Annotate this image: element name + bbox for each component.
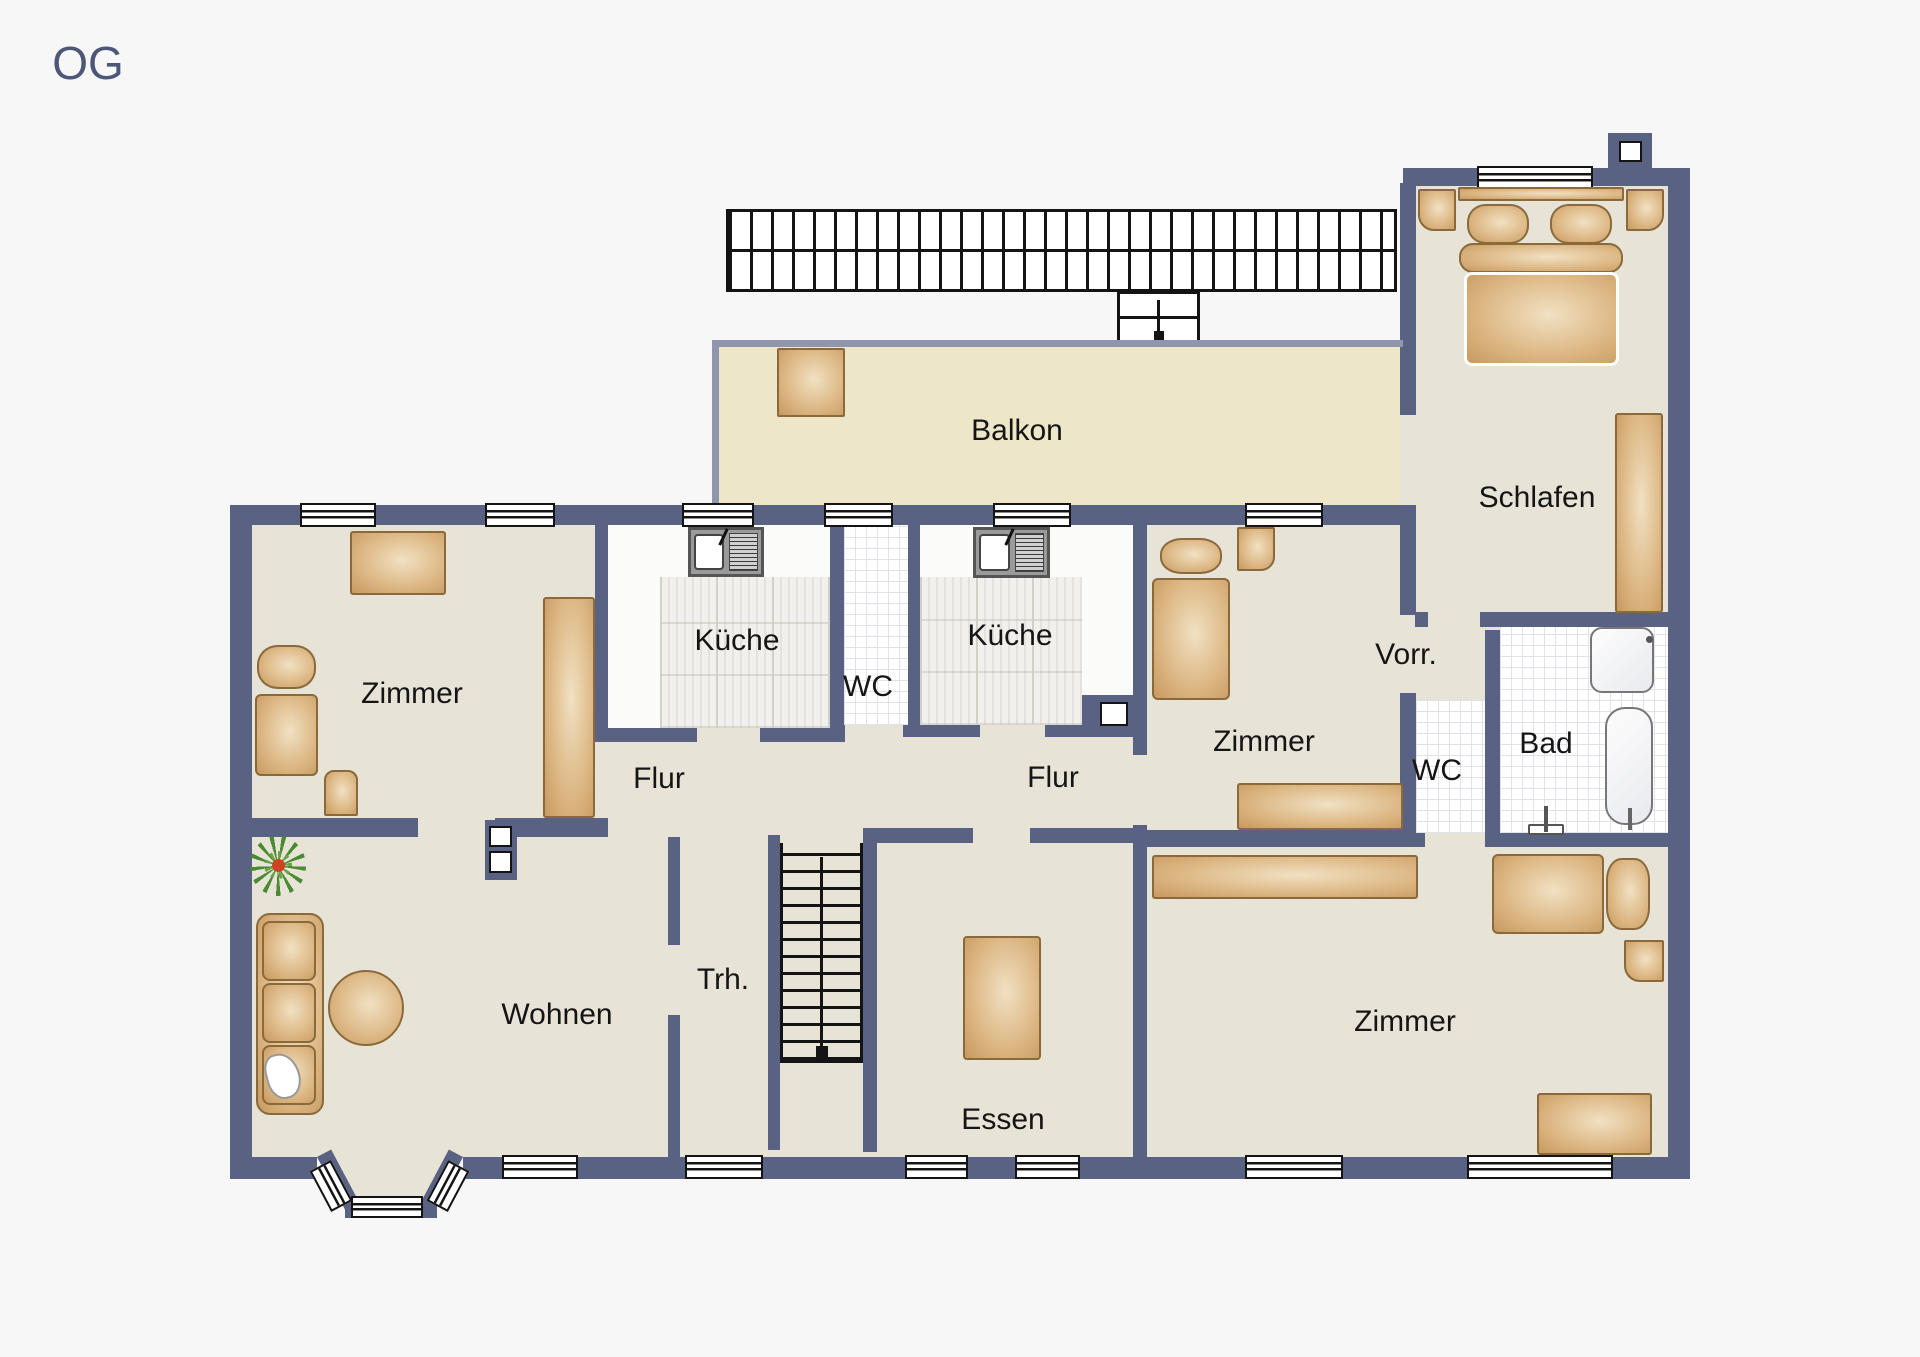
door-leaf-wc-east: [1479, 636, 1486, 700]
room-label-flur-east: Flur: [1027, 761, 1079, 795]
side-cabinet-zimmermid: [1237, 527, 1275, 571]
side-cabinet-zimmernw: [324, 770, 358, 816]
wall-schlafen-west-lower: [1400, 505, 1416, 615]
room-label-treppenhaus: Trh.: [697, 963, 749, 997]
stair-landing: [1117, 291, 1200, 343]
window-essen-2: [1015, 1155, 1080, 1179]
door-leaf-kueche-east: [1040, 660, 1047, 728]
bed-zimmerse-pillow: [1606, 858, 1650, 930]
indoor-stair-center-line: [820, 857, 823, 1057]
wall-treppe-left: [768, 835, 780, 1150]
plant-icon: [250, 836, 306, 896]
door-leaf-balcony-schlafen: [1415, 413, 1504, 420]
room-label-essen: Essen: [961, 1103, 1044, 1137]
room-label-balkon: Balkon: [971, 414, 1063, 448]
door-gap-balcony-schlafen: [1400, 415, 1416, 505]
window-kueche-west: [682, 503, 754, 527]
wall-kueche-east-bottom-a: [920, 725, 980, 737]
chimney-kueche-east-flue: [1100, 702, 1128, 726]
balcony-chair-right: [850, 357, 886, 409]
desk-zimmerse: [1537, 1093, 1652, 1155]
dresser-zimmerse: [1152, 855, 1418, 899]
door-leaf-flur: [920, 746, 1000, 753]
room-label-kueche-west: Küche: [694, 624, 779, 658]
window-bay-center: [351, 1196, 423, 1218]
sink-drainboard: [1015, 533, 1044, 572]
sink-unit-kueche-east: [973, 527, 1050, 578]
bed-zimmerse-blanket: [1492, 854, 1604, 934]
sofa-cushion-2: [262, 983, 316, 1043]
balcony-table: [777, 348, 845, 417]
outdoor-staircase: [726, 209, 1397, 292]
room-label-wohnen: Wohnen: [501, 998, 612, 1032]
wall-kueche-west-bottom-a: [595, 728, 697, 742]
room-label-zimmer-mid: Zimmer: [1213, 725, 1315, 759]
toilet-tank: [1428, 820, 1464, 833]
wall-flur-essen-b: [1030, 828, 1133, 843]
door-tick-zimmermid: [1126, 788, 1154, 791]
bed-double-blanket: [1464, 272, 1619, 366]
dining-chair-left-2: [917, 999, 957, 1045]
bathtub: [1600, 702, 1664, 836]
window-essen-1: [905, 1155, 968, 1179]
dining-chair-left-1: [917, 949, 957, 995]
wall-schlafen-west-upper: [1400, 183, 1416, 415]
window-treppe-bottom: [685, 1155, 763, 1179]
window-wc-mid: [824, 503, 893, 527]
bed-zimmernw-pillow: [257, 645, 316, 689]
stove-kueche-east: [1083, 610, 1131, 658]
wall-bad-bottom-a: [1400, 833, 1425, 847]
nightstand-right: [1626, 189, 1664, 231]
bed-zimmermid-pillow: [1160, 538, 1222, 574]
sink-wc-mid: [856, 612, 898, 660]
wardrobe-schlafen: [1615, 413, 1663, 613]
window-zimmernw-2: [485, 503, 555, 527]
shower-drain: [1646, 636, 1653, 643]
stair-center-line: [729, 249, 1394, 252]
coffee-table-round: [328, 970, 404, 1046]
wall-zimmermid-west-lower: [1133, 825, 1147, 1157]
wall-wc-mid-bottom-a: [830, 725, 845, 737]
bathtub-drain: [1628, 808, 1632, 830]
room-label-zimmer-se: Zimmer: [1354, 1005, 1456, 1039]
wall-schlafen-bottom-a: [1415, 612, 1428, 627]
dining-chair-right-1: [1045, 949, 1085, 995]
stove-kueche-west: [606, 610, 658, 658]
plant-core: [272, 859, 285, 872]
nightstand-left: [1418, 189, 1456, 231]
sink-bad-faucet: [1544, 806, 1548, 832]
sofa-cushion-1: [262, 921, 316, 981]
dining-chair-bottom: [968, 1062, 1014, 1102]
wall-bottom-west: [230, 1157, 317, 1179]
door-tick-zimmerse: [1453, 827, 1456, 853]
room-label-wc-mid: WC: [843, 670, 893, 704]
shower-pan: [1590, 627, 1654, 693]
room-label-kueche-east: Küche: [967, 619, 1052, 653]
landing-arrow-base: [1154, 331, 1164, 340]
chimney-schlafen-flue: [1619, 141, 1642, 162]
dining-table: [963, 936, 1041, 1060]
bed-zimmermid-blanket: [1152, 578, 1230, 700]
indoor-staircase: [780, 843, 863, 1063]
door-tick-kueche-west: [726, 722, 729, 748]
door-tick-zimmernw: [455, 812, 458, 842]
wall-wohnen-flur-a: [668, 837, 680, 945]
toilet-wc-mid: [852, 528, 896, 588]
room-label-bad: Bad: [1519, 727, 1572, 761]
nightstand-zimmerse: [1624, 940, 1664, 982]
balcony-chair-left: [736, 357, 772, 409]
door-leaf-vorr: [1338, 623, 1404, 630]
chimney-wohnen-flue-2: [489, 851, 512, 873]
wall-kueche-wc: [830, 525, 844, 737]
wall-zimmermid-zimmerse: [1147, 830, 1403, 847]
door-tick-schlafen-vorr: [1452, 604, 1455, 635]
room-label-zimmer-nw: Zimmer: [361, 677, 463, 711]
wall-wc-kueche-east: [908, 525, 920, 737]
floor-title: OG: [52, 36, 124, 90]
bed-double-pillow-left: [1467, 204, 1529, 244]
wall-wohnen-flur-b: [668, 1015, 680, 1157]
balcony-rail-north: [712, 340, 1403, 347]
chimney-wohnen-flue-1: [489, 826, 512, 847]
window-zimmermid: [1245, 503, 1323, 527]
floor-plan-canvas: OG Balkon Schlafen Zimmer Küche WC Küche…: [0, 0, 1920, 1357]
window-zimmerse-2: [1467, 1155, 1613, 1179]
wall-treppe-right: [863, 828, 877, 1152]
indoor-stair-start-post: [816, 1046, 828, 1058]
balcony-rail-west: [712, 340, 719, 510]
sofa: [256, 913, 324, 1115]
window-wohnen-bottom: [502, 1155, 578, 1179]
wall-flur-essen-a: [863, 828, 973, 843]
dining-chair-right-2: [1045, 999, 1085, 1045]
shower: [1585, 622, 1665, 704]
wall-zimmermid-west-upper: [1133, 525, 1147, 755]
door-leaf-bad: [1496, 635, 1503, 705]
wall-right: [1668, 168, 1690, 1179]
wall-top-main: [230, 505, 1405, 525]
door-tick-wohnen: [660, 978, 687, 981]
window-zimmerse-1: [1245, 1155, 1343, 1179]
room-label-schlafen: Schlafen: [1479, 481, 1596, 515]
wardrobe-zimmernw: [543, 597, 595, 818]
bed-double-pillow-right: [1550, 204, 1612, 244]
bed-double-blanket-roll: [1459, 243, 1623, 273]
window-kueche-east: [993, 503, 1071, 527]
room-label-flur-west: Flur: [633, 762, 685, 796]
sink-unit-kueche-west: [688, 527, 764, 577]
dining-chair-top: [968, 894, 1014, 934]
sideboard-zimmermid: [1237, 783, 1403, 830]
room-label-vorraum: Vorr.: [1375, 638, 1437, 672]
toilet-bowl: [854, 540, 894, 586]
room-label-wc-east: WC: [1412, 754, 1462, 788]
wall-zimmernw-bottom-a: [252, 818, 418, 837]
door-tick-wc-mid: [872, 719, 875, 744]
window-zimmernw-1: [300, 503, 376, 527]
wall-wc-mid-bottom-b: [903, 725, 920, 737]
door-tick-flur-essen: [1000, 822, 1003, 848]
sink-drainboard: [729, 533, 758, 571]
wall-left: [230, 505, 252, 1178]
bed-zimmernw-blanket: [255, 694, 318, 776]
desk-zimmernw: [350, 531, 446, 595]
